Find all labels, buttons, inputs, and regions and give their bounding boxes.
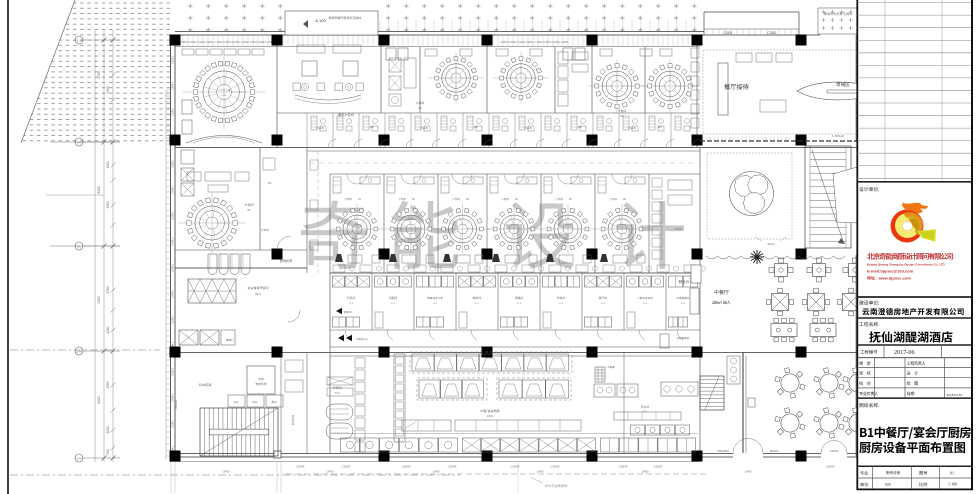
svg-text:C1833: C1833	[296, 465, 305, 469]
svg-text:1-K: 1-K	[77, 140, 82, 144]
svg-text:10400: 10400	[744, 470, 752, 474]
svg-text:07: 07	[247, 208, 251, 212]
svg-text:WC: WC	[578, 126, 582, 129]
svg-text:C1841: C1841	[170, 316, 174, 324]
svg-text:5700: 5700	[97, 71, 101, 78]
svg-text:139.9: 139.9	[487, 415, 494, 418]
svg-text:8400: 8400	[97, 186, 101, 193]
svg-text:1:100: 1:100	[948, 482, 957, 487]
svg-text:C1833: C1833	[826, 465, 835, 469]
svg-text:2.600: 2.600	[221, 95, 227, 97]
svg-text:WC: WC	[370, 126, 374, 129]
svg-text:10400: 10400	[536, 470, 544, 474]
svg-text:C1833: C1833	[619, 465, 628, 469]
svg-text:C1841: C1841	[170, 420, 174, 428]
svg-text:E-mail:bjqnsc@163.com: E-mail:bjqnsc@163.com	[867, 269, 914, 274]
svg-text:C1841: C1841	[170, 160, 174, 168]
svg-text:3300: 3300	[106, 201, 110, 208]
svg-text:WC: WC	[658, 126, 662, 129]
svg-text:71.9: 71.9	[335, 392, 340, 395]
svg-text:C1833: C1833	[654, 465, 663, 469]
svg-text:C1841 C1841 C1841 C1841 C1841: C1841 C1841 C1841 C1841 C1841 C1841 C184…	[500, 40, 569, 44]
svg-text:81.9: 81.9	[255, 292, 261, 296]
svg-text:1-N: 1-N	[77, 456, 82, 460]
svg-text:3300: 3300	[106, 286, 110, 293]
svg-text:C1833: C1833	[830, 449, 839, 453]
svg-text:1-JK7L24: 1-JK7L24	[832, 134, 844, 138]
svg-text:M1842: M1842	[770, 449, 779, 453]
svg-text:900: 900	[106, 449, 110, 455]
svg-text:2017-06: 2017-06	[894, 349, 915, 356]
svg-text:C1833: C1833	[511, 465, 520, 469]
svg-text:C1841: C1841	[170, 82, 174, 90]
svg-text:10400: 10400	[432, 470, 440, 474]
svg-text:1-J: 1-J	[77, 38, 82, 42]
svg-text:Beijing Qineng Shangchu Design: Beijing Qineng Shangchu Design Consultan…	[867, 263, 945, 267]
svg-text:C1841: C1841	[170, 290, 174, 298]
svg-text:2018-03-01: 2018-03-01	[947, 393, 963, 397]
svg-text:9400: 9400	[97, 296, 101, 303]
svg-text:C1841: C1841	[723, 31, 733, 35]
svg-text:-6.100: -6.100	[314, 18, 326, 23]
svg-text:C1841: C1841	[170, 186, 174, 194]
svg-text:C1841 C1841 C1841 C1841 C1841: C1841 C1841 C1841 C1841 C1841 C1841 C184…	[180, 40, 275, 44]
svg-text:1-L: 1-L	[77, 244, 82, 248]
svg-text:C1841: C1841	[170, 56, 174, 64]
svg-text:C1833: C1833	[402, 465, 411, 469]
svg-text:1500: 1500	[106, 161, 110, 168]
svg-text:01: 01	[950, 471, 954, 476]
svg-text:10400: 10400	[222, 470, 230, 474]
svg-text:C1841: C1841	[170, 264, 174, 272]
svg-text:C1841: C1841	[170, 368, 174, 376]
svg-text:8400: 8400	[97, 396, 101, 403]
svg-text:3000: 3000	[106, 426, 110, 433]
svg-text:10400: 10400	[641, 470, 649, 474]
svg-text:WC: WC	[474, 126, 478, 129]
svg-text:3300: 3300	[106, 381, 110, 388]
svg-text:10400: 10400	[326, 470, 334, 474]
svg-text:mm: mm	[885, 483, 891, 487]
svg-text:4450: 4450	[106, 86, 110, 93]
svg-text:TM12842: TM12842	[717, 449, 729, 453]
svg-text:C1833: C1833	[551, 465, 560, 469]
svg-text:TM1824: TM1824	[174, 399, 178, 410]
svg-text:: www.bjqnsc.com: : www.bjqnsc.com	[876, 276, 911, 281]
svg-text:C1841: C1841	[170, 108, 174, 116]
svg-text:C1841: C1841	[767, 31, 777, 35]
svg-text:C1833: C1833	[342, 465, 351, 469]
svg-text:1150: 1150	[106, 326, 110, 333]
svg-text:C1841: C1841	[170, 212, 174, 220]
svg-text:C1833: C1833	[448, 465, 457, 469]
svg-text:C1841: C1841	[170, 238, 174, 246]
